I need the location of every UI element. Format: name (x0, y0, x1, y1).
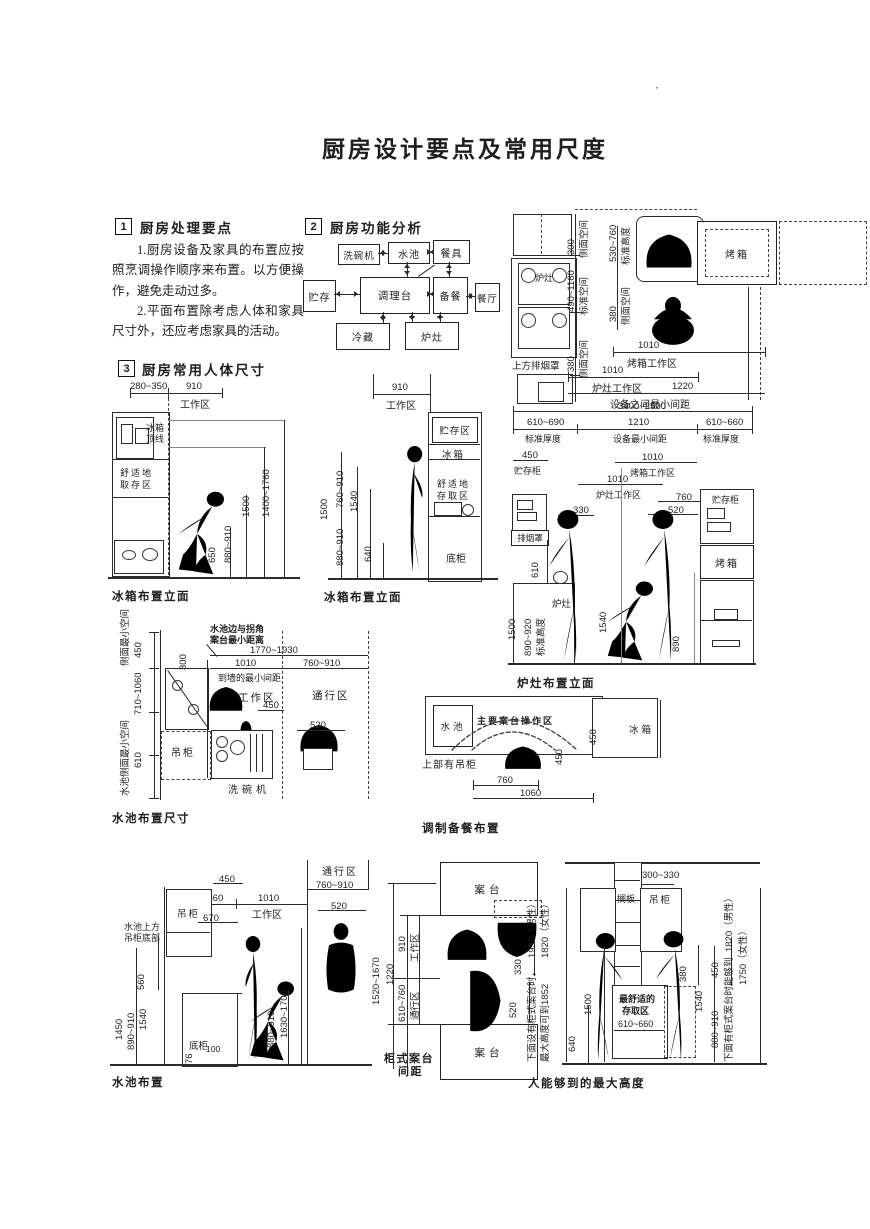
wall-line (368, 860, 369, 890)
dim-1400-1760: 1400~1760 (261, 469, 273, 517)
dim-530-760: 530~760 (608, 225, 620, 262)
dimension-line (566, 888, 567, 1062)
dim-890: 890 (671, 636, 683, 652)
label-sink-side-min-space: 水池侧面最小空间 (120, 720, 132, 796)
dim-330: 330 (513, 959, 525, 975)
label-hanging-cabinet: 吊柜 (171, 744, 195, 759)
dim-male-height: 1820（男性） (724, 893, 736, 952)
dim-tick (149, 632, 159, 633)
dim-tick (765, 347, 766, 357)
dim-tick (149, 798, 159, 799)
pot-icon (714, 609, 738, 620)
dim-1500: 1500 (583, 994, 595, 1015)
caption-fridge-elevation-2: 冰箱布置立面 (324, 589, 402, 605)
label-fridge-top-line: 顶线 (146, 432, 164, 445)
dim-610-690: 610~690 (527, 417, 564, 428)
flow-arrow (407, 262, 408, 277)
label-std-thickness: 标准厚度 (525, 432, 561, 445)
label-side-space: 侧面空间 (621, 287, 633, 325)
label-std-thickness: 标准厚度 (703, 432, 739, 445)
dim-1500: 1500 (319, 499, 331, 520)
dim-1220: 1220 (672, 381, 693, 392)
dimension-line (621, 468, 622, 663)
dim-450: 450 (133, 642, 145, 658)
dim-tick (568, 372, 569, 382)
flow-arrow (412, 312, 413, 322)
ground-line (328, 578, 498, 580)
section1-number: 1 (115, 218, 132, 235)
oven-extension-dashed (779, 221, 867, 285)
reference-line (168, 420, 286, 421)
wall-line (748, 287, 749, 400)
human-figure-top (442, 918, 492, 964)
dim-tick (752, 406, 753, 434)
section1-para1: 1.厨房设备及家具的布置应按照烹调操作顺序来布置。以方便操作，避免走动过多。 (112, 240, 304, 301)
label-std-space: 标准空间 (579, 277, 591, 315)
dimension-line (210, 668, 282, 669)
human-figure-top (205, 678, 247, 714)
dish-icon (230, 740, 245, 755)
dimension-line (258, 710, 284, 711)
label-fridge: 冰箱 (629, 722, 654, 736)
fridge-double-line (660, 700, 661, 758)
section3-number: 3 (118, 360, 135, 377)
dish-icon (216, 736, 228, 748)
dimension-line (357, 467, 358, 578)
dim-650: 650 (207, 547, 219, 563)
dim-tick (697, 424, 698, 434)
label-side-min-space: 侧面最小空间 (120, 609, 132, 666)
section1-heading: 厨房处理要点 (140, 217, 233, 237)
dimension-line (158, 935, 159, 990)
rack-line (256, 734, 257, 772)
dimension-line (308, 889, 368, 890)
section2-number: 2 (305, 218, 322, 235)
dimension-line (282, 668, 368, 669)
flow-arrow (428, 252, 433, 253)
rack-line (250, 734, 251, 772)
dim-450: 450 (588, 729, 600, 745)
counter-detail (538, 382, 564, 402)
dimension-line (694, 573, 695, 663)
dim-tick (593, 793, 594, 803)
section1-para2: 2.平面布置除考虑人体和家具尺寸外，还应考虑家具的活动。 (112, 301, 304, 342)
caption-sink-plan: 水池布置尺寸 (112, 810, 190, 826)
flow-arrow (383, 312, 384, 323)
rack-line (262, 734, 263, 772)
flow-box-prep: 备餐 (433, 277, 468, 314)
label-storage-cabinet: 贮存柜 (514, 464, 541, 477)
dim-1010: 1010 (258, 893, 279, 904)
dashed-region (664, 986, 696, 1058)
flow-arrow (440, 312, 441, 322)
caption-stove-elevation: 炉灶布置立面 (517, 675, 595, 691)
flow-box-dishwasher: 洗碗机 (338, 244, 380, 265)
item-sketch (462, 504, 474, 516)
dim-tick (373, 389, 374, 399)
wall-line-dashed (760, 287, 761, 400)
dim-880-910: 880~910 (266, 1011, 278, 1048)
label-work-zone: 工作区 (410, 933, 422, 962)
label-storage-cabinet: 贮存柜 (712, 493, 739, 506)
drain-icon (172, 680, 183, 691)
dim-1540: 1540 (349, 491, 361, 512)
flow-diagonal-line (418, 265, 435, 277)
dim-490-1160: 490~1160 (566, 270, 578, 312)
dimension-line (604, 946, 605, 1062)
label-pass-zone: 通行区 (322, 863, 358, 878)
dim-710-1060: 710~1060 (133, 672, 145, 715)
dim-1010-oven: 1010 (638, 340, 659, 351)
flow-arrow (334, 294, 360, 295)
dim-560: 560 (136, 974, 148, 990)
item-sketch (517, 500, 533, 510)
dim-880-910: 880~910 (335, 529, 347, 566)
dimension-line (213, 883, 243, 884)
item-sketch (121, 424, 133, 444)
dimension-line (284, 420, 285, 577)
dim-tick (149, 668, 159, 669)
label-equipment-min-gap: 设备最小间距 (613, 432, 667, 445)
human-figure-standing (394, 443, 456, 575)
burner-icon (552, 268, 567, 283)
dim-640: 640 (363, 546, 375, 562)
item-sketch (517, 512, 537, 521)
dim-1500: 1500 (241, 496, 253, 517)
dimension-line (760, 888, 761, 1063)
dim-1630-1700: 1630~1700 (279, 990, 291, 1038)
shelf-line (112, 497, 168, 498)
label-shelf: 搁板 (617, 892, 635, 905)
item-sketch (707, 508, 725, 519)
dim-610-660: 610~660 (618, 1019, 653, 1029)
shelf-line (614, 880, 640, 881)
stray-mark: · (655, 80, 659, 94)
label-storage-zone: 贮存区 (432, 417, 478, 443)
dish-icon (216, 750, 228, 762)
dimension-line (615, 462, 697, 463)
drain-icon (188, 704, 199, 715)
wall-line (575, 209, 697, 210)
lower-cabinet (700, 580, 754, 665)
dim-910: 910 (397, 936, 409, 952)
label-pass-zone: 通行区 (312, 688, 350, 703)
dim-910: 910 (186, 381, 202, 392)
dimension-line (210, 655, 368, 656)
zone-line-dashed (282, 631, 283, 799)
item-sketch (707, 522, 731, 532)
flow-box-stove: 炉灶 (405, 322, 459, 350)
dimension-line (301, 928, 302, 1065)
dimension-line (568, 393, 765, 394)
label-work-zone: 工作区 (180, 396, 210, 411)
dimension-line (154, 632, 155, 798)
hood-label: 上方排烟罩 (512, 358, 560, 372)
dim-300: 300 (178, 654, 190, 670)
dim-880-910: 880~910 (223, 526, 235, 563)
dim-610-660: 610~660 (706, 417, 743, 428)
caption-max-reach: 人能够到的最大高度 (528, 1075, 645, 1091)
dim-520: 520 (508, 1002, 520, 1018)
dimension-line (370, 489, 371, 578)
dim-450: 450 (710, 962, 722, 978)
dimension-line (568, 377, 698, 378)
dimension-line (473, 798, 593, 799)
flow-box-counter: 调理台 (360, 277, 430, 314)
document-page: 厨房设计要点及常用尺度 · 1 厨房处理要点 1.厨房设备及家具的布置应按照烹调… (0, 0, 870, 1229)
human-figure-top (466, 962, 512, 1040)
label-comfort-zone: 取存区 (120, 478, 153, 491)
human-figure-top (500, 738, 546, 772)
dim-380: 380 (678, 966, 690, 982)
flow-box-cold: 冷藏 (336, 323, 390, 350)
dim-tick (388, 1024, 440, 1025)
label-hanging-cabinet: 吊柜 (649, 892, 672, 906)
label-work-zone: 工作区 (386, 397, 416, 412)
dim-1210: 1210 (628, 417, 649, 428)
wall-line (307, 860, 308, 1065)
reference-line (168, 447, 266, 448)
dim-640: 640 (567, 1036, 579, 1052)
zone-line-dashed (368, 631, 369, 799)
dim-tick (149, 755, 159, 756)
dimension-line (588, 1006, 589, 1064)
label-stove-zone: 炉灶工作区 (596, 488, 641, 501)
dim-tick (149, 712, 159, 713)
shelf-line (166, 932, 210, 933)
dimension-line (513, 411, 753, 412)
human-figure (640, 222, 698, 272)
dimension-line (614, 1030, 664, 1031)
dimension-line (318, 910, 366, 911)
dim-tick (400, 915, 440, 916)
dim-280-350: 280~350 (130, 381, 167, 392)
label-oven-zone: 烤箱工作区 (630, 466, 675, 479)
burner-icon (521, 268, 536, 283)
caption-sink-elevation: 水池布置 (112, 1074, 164, 1090)
human-figure-back (318, 920, 364, 1063)
ground-line (562, 1063, 767, 1065)
flow-arrow (428, 294, 433, 295)
plate-icon (712, 640, 740, 647)
page-title: 厨房设计要点及常用尺度 (322, 130, 608, 164)
item-sketch (122, 550, 136, 560)
dim-380: 380 (566, 356, 578, 372)
note-left-max: 最大高度可到1852 (540, 984, 552, 1062)
label-upper-cabinet: 上部有吊柜 (422, 756, 477, 771)
dim-910: 910 (392, 382, 408, 393)
human-figure-standing-dashed (638, 497, 693, 663)
dim-1450: 1450 (114, 1019, 126, 1040)
dim-1540: 1540 (598, 612, 610, 633)
dim-610-760: 610~760 (397, 985, 409, 1022)
dim-1010-stove: 1010 (602, 365, 623, 376)
dim-1540: 1540 (138, 1009, 150, 1030)
dim-450: 450 (554, 749, 566, 765)
flow-arrow (378, 253, 388, 254)
dim-tick (388, 883, 436, 884)
dimension-line (613, 352, 765, 353)
dimension-line (513, 460, 548, 461)
dimension-line (373, 394, 430, 395)
note-right-counter: 下面有柜式案台时能够到 (724, 957, 736, 1062)
dim-tick (698, 372, 699, 382)
label-pass-zone: 通行区 (410, 991, 422, 1020)
dim-tick (473, 780, 474, 790)
hood-cabinet (513, 214, 572, 256)
note-left-counter: 下面设有柜式案台时， (527, 967, 539, 1062)
tray-icon (303, 748, 333, 770)
label-above-sink: 吊柜底部 (124, 931, 160, 944)
dim-300: 300 (566, 239, 578, 255)
oven-inner-dashed (705, 229, 769, 277)
dim-tick (394, 978, 440, 979)
label-hanging-cabinet: 吊柜 (177, 906, 200, 920)
human-figure-squatting (168, 487, 224, 577)
dim-male-height: 1930（男性） (527, 899, 539, 958)
label-comfort-zone: 存取区 (622, 1004, 649, 1017)
item-sketch (142, 548, 158, 561)
burner-icon (552, 313, 567, 328)
label-std-height: 标准高度 (621, 227, 633, 265)
ground-line (108, 577, 300, 579)
label-oven-zone: 烤箱工作区 (627, 355, 677, 370)
dimension-line (473, 785, 538, 786)
human-figure-reaching-up (543, 497, 598, 663)
flow-box-storage: 贮存 (303, 280, 336, 312)
dimension-line (513, 429, 753, 430)
dim-female-height: 1750（女性） (738, 926, 750, 985)
dim-female-height: 1820（女性） (540, 899, 552, 958)
section2-heading: 厨房功能分析 (330, 217, 423, 237)
dim-610: 610 (133, 752, 145, 768)
caption-prep-plan: 调制备餐布置 (422, 820, 500, 836)
dim-880-910: 880~910 (710, 1011, 722, 1048)
flow-box-dining: 餐厅 (475, 283, 500, 312)
dim-1500: 1500 (507, 619, 519, 640)
oven-box: 烤箱 (700, 545, 754, 579)
dim-890-910: 890~910 (126, 1013, 138, 1050)
cabinet-centerline (541, 214, 542, 254)
caption-fridge-elevation-1: 冰箱布置立面 (112, 588, 190, 604)
section3-heading: 厨房常用人体尺寸 (142, 359, 266, 379)
dim-76: 76 (184, 1053, 196, 1064)
dimension-line (297, 730, 345, 731)
label-dishwasher: 洗碗机 (228, 781, 270, 796)
dimension-line (130, 393, 222, 394)
ceiling-line (565, 862, 760, 864)
wall-line (164, 887, 165, 1065)
dim-610: 610 (530, 562, 542, 578)
dim-tick (513, 406, 514, 434)
caption-counter-spacing: 间距 (398, 1063, 423, 1079)
stove-label: 炉灶 (535, 271, 553, 284)
dim-tick (613, 347, 614, 357)
dim-1540: 1540 (694, 991, 706, 1012)
dimension-line (698, 945, 699, 985)
dim-1520-1670: 1520~1670 (371, 957, 383, 1005)
dim-760-910: 760~910 (335, 471, 347, 508)
shelf-line (112, 459, 168, 460)
label-work-zone: 工作区 (252, 906, 282, 921)
ground-line (508, 663, 756, 665)
dim-300-330: 300~330 (642, 870, 679, 881)
burner-icon (521, 313, 536, 328)
flow-arrow (466, 296, 475, 297)
section1-body: 1.厨房设备及家具的布置应按照烹调操作顺序来布置。以方便操作，避免走动过多。 2… (112, 240, 304, 341)
dim-1220: 1220 (385, 964, 397, 985)
flow-arrow (449, 262, 450, 277)
dimension-line (198, 922, 238, 923)
dim-380: 380 (608, 306, 620, 322)
label-side-space: 侧面空间 (579, 220, 591, 258)
ground-line (110, 1064, 372, 1066)
dimension-line (383, 543, 384, 578)
dim-tick (222, 388, 223, 398)
dim-tick (577, 424, 578, 434)
label-side-space: 侧面空间 (579, 340, 591, 378)
dim-890-920: 890~920 (523, 619, 535, 656)
dim-tick (236, 899, 237, 909)
human-figure-dashed (638, 288, 708, 346)
shelf-line (700, 620, 752, 621)
